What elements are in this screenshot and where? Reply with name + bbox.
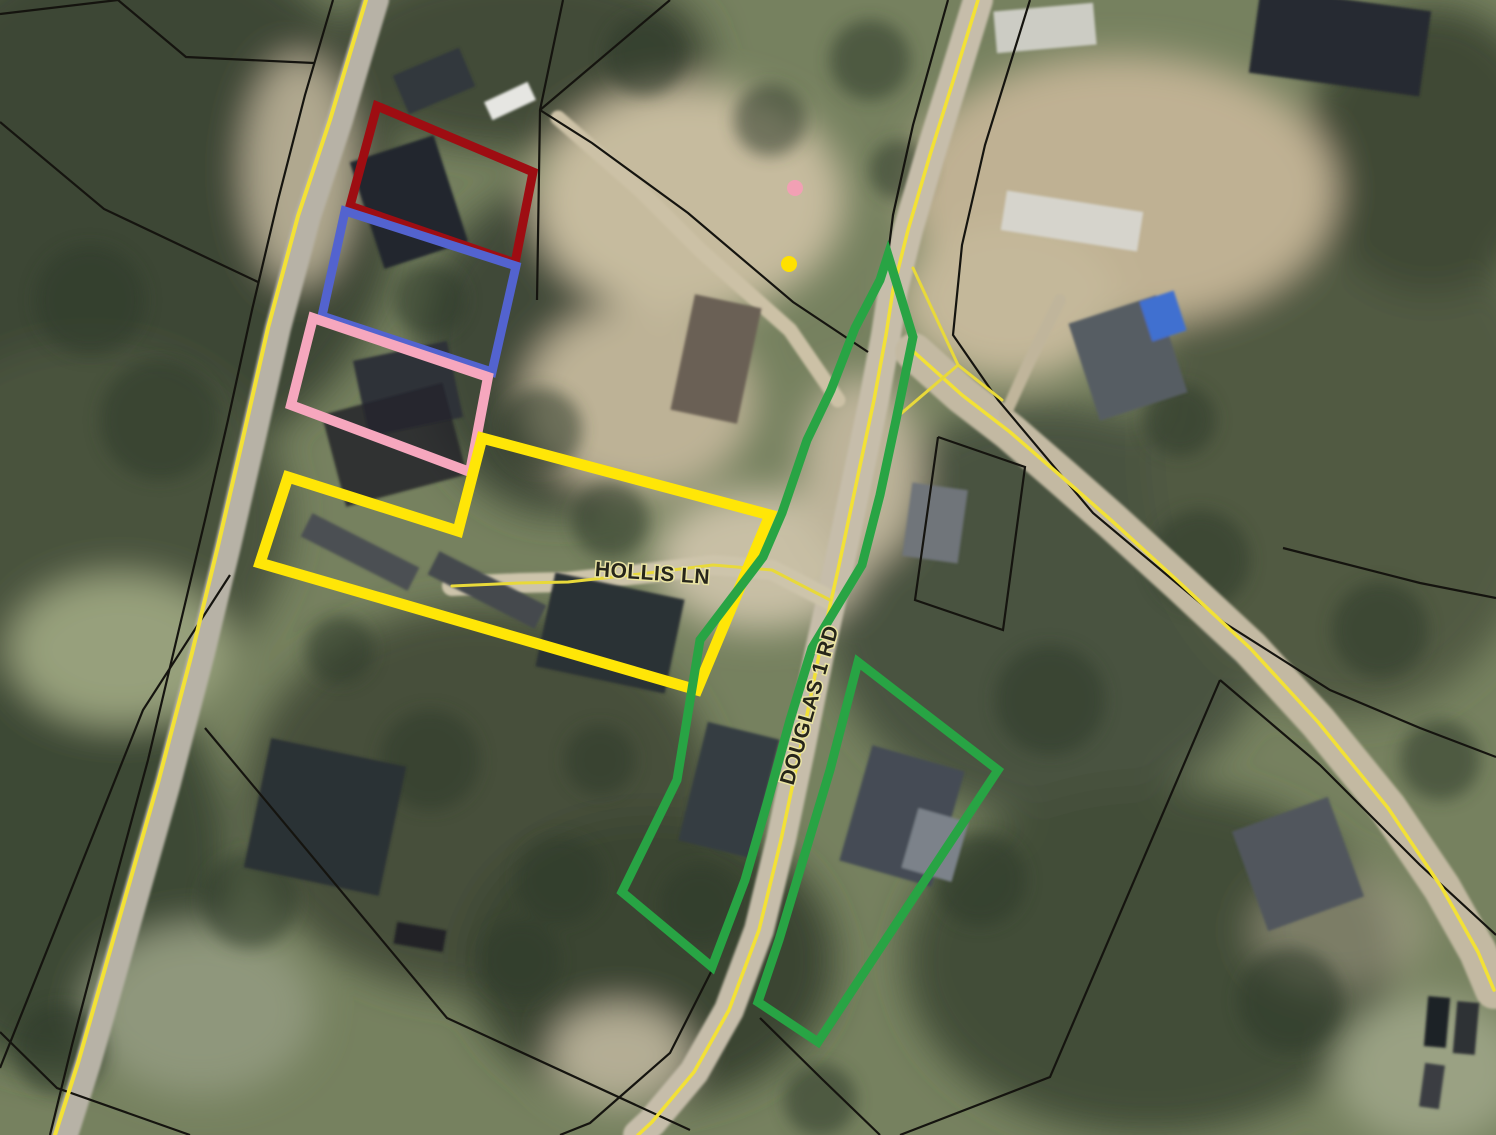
- gis-overlay-layer: HOLLIS LNDOUGLAS 1 RD: [0, 0, 1496, 1135]
- map-viewport: HOLLIS LNDOUGLAS 1 RD: [0, 0, 1496, 1135]
- parcel-outline-blue[interactable]: [322, 211, 516, 372]
- parcel-boundary-line-3: [0, 122, 258, 282]
- pink-point-marker[interactable]: [787, 180, 803, 196]
- west-road-edge-line: [55, 0, 366, 1135]
- parcel-boundary-line-4: [537, 0, 563, 300]
- parcel-boundary-line-9: [205, 728, 690, 1130]
- parcel-outline-pink[interactable]: [291, 318, 488, 472]
- road-label-hollis-ln: HOLLIS LN: [594, 558, 711, 589]
- parcel-boundary-line-14: [1283, 548, 1496, 598]
- yellow-point-marker[interactable]: [781, 256, 797, 272]
- parcel-boundary-line-13: [915, 437, 1025, 630]
- parcel-boundary-line-8: [0, 575, 230, 1068]
- parcel-outline-green-west[interactable]: [622, 255, 913, 967]
- parcel-boundary-line-6: [540, 110, 868, 352]
- parcel-boundary-line-17: [560, 970, 712, 1135]
- parcel-boundary-line-10: [0, 1032, 190, 1135]
- parcel-boundary-line-1: [0, 0, 118, 14]
- parcel-boundary-line-16: [1220, 680, 1496, 935]
- parcel-boundary-line-2: [118, 0, 314, 63]
- loop-road-centerline: [914, 352, 1494, 990]
- parcel-boundary-line-12: [953, 0, 1496, 757]
- parcel-boundary-line-15: [900, 680, 1220, 1135]
